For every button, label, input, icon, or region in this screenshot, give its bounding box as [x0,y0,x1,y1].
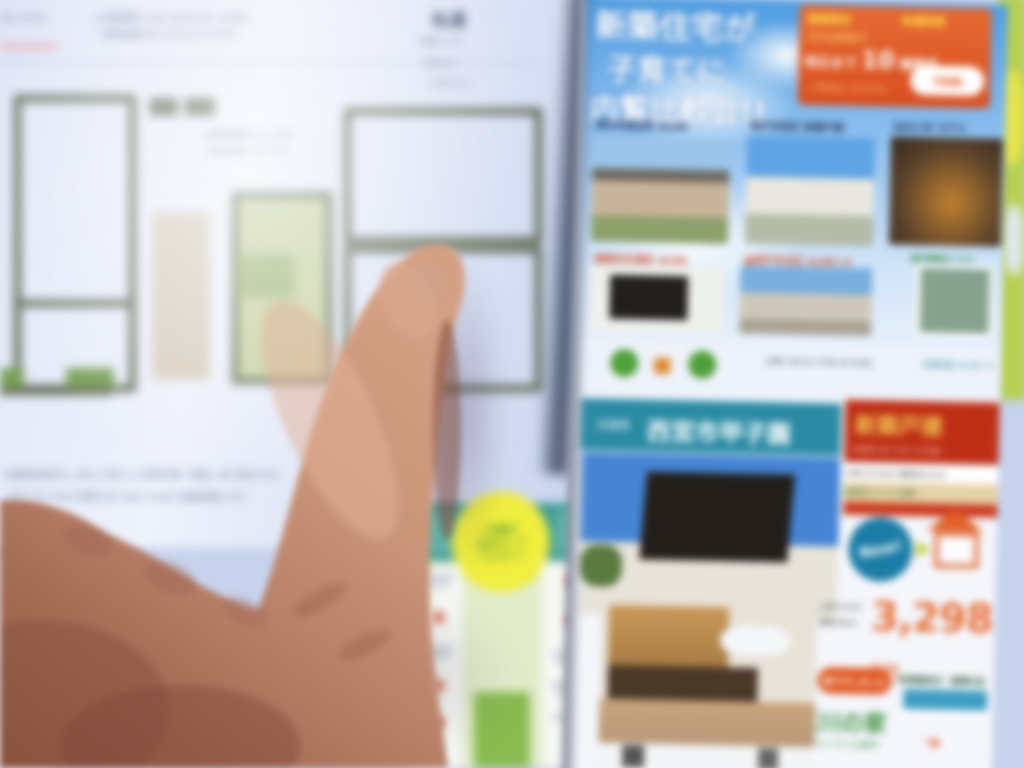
thumb-edge-shade [433,320,461,540]
pointing-hand [0,0,1024,768]
photo-scene: No.1034 土地面積:120.00㎡(36.30坪) 建物面積:98.00㎡… [0,0,1024,768]
